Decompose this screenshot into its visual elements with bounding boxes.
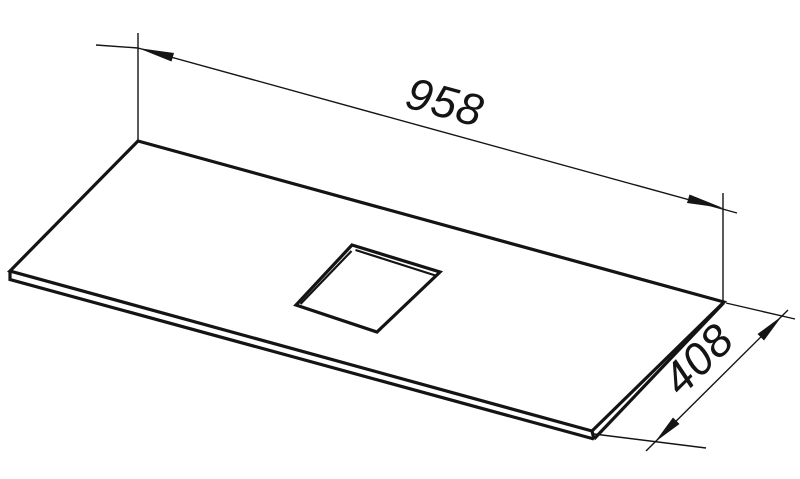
drawing-page: 958 408 bbox=[0, 0, 800, 479]
arrowhead-length-left bbox=[138, 48, 174, 62]
arrowhead-width-top bbox=[758, 316, 783, 341]
sink-cutout-outline bbox=[296, 245, 440, 332]
cutout-inner-rim-left bbox=[301, 251, 352, 304]
dimension-line-length-overshoot bbox=[96, 45, 138, 48]
countertop-slab bbox=[10, 141, 724, 439]
countertop-top-face bbox=[10, 141, 724, 431]
extension-line-width-top bbox=[726, 303, 795, 319]
countertop-front-right-corner-joint bbox=[592, 431, 594, 439]
cutout-inner-rim-right bbox=[356, 250, 438, 276]
dimension-label-width: 408 bbox=[652, 313, 743, 404]
dimension-label-length: 958 bbox=[401, 67, 490, 137]
extension-line-width-bottom bbox=[594, 434, 706, 448]
arrowhead-width-bottom bbox=[655, 418, 680, 443]
technical-drawing-canvas: 958 408 bbox=[0, 0, 800, 479]
dimension-labels: 958 408 bbox=[401, 67, 744, 404]
arrowhead-length-right bbox=[687, 195, 723, 209]
